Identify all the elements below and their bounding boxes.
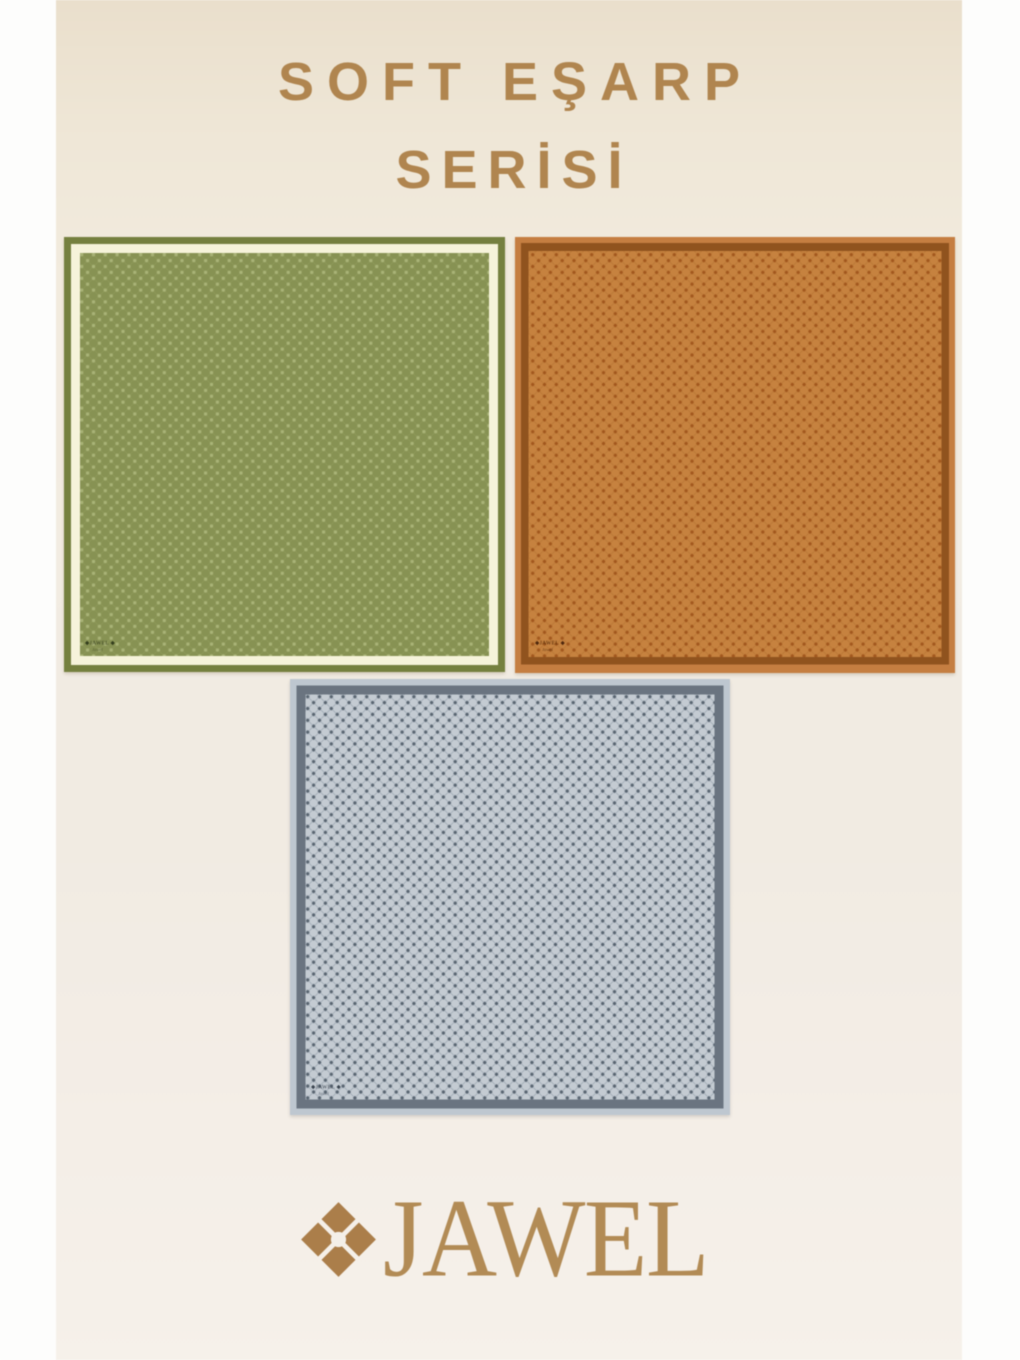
svg-text:Jawel: Jawel: [542, 647, 553, 652]
svg-text:◆JAWEL ◆: ◆JAWEL ◆: [311, 1085, 341, 1091]
svg-text:◆JAWEL ◆: ◆JAWEL ◆: [85, 641, 115, 647]
svg-text:Jawel: Jawel: [92, 647, 103, 652]
svg-text:Jawel: Jawel: [318, 1091, 329, 1096]
svg-text:◆JAWEL ◆: ◆JAWEL ◆: [535, 641, 565, 647]
